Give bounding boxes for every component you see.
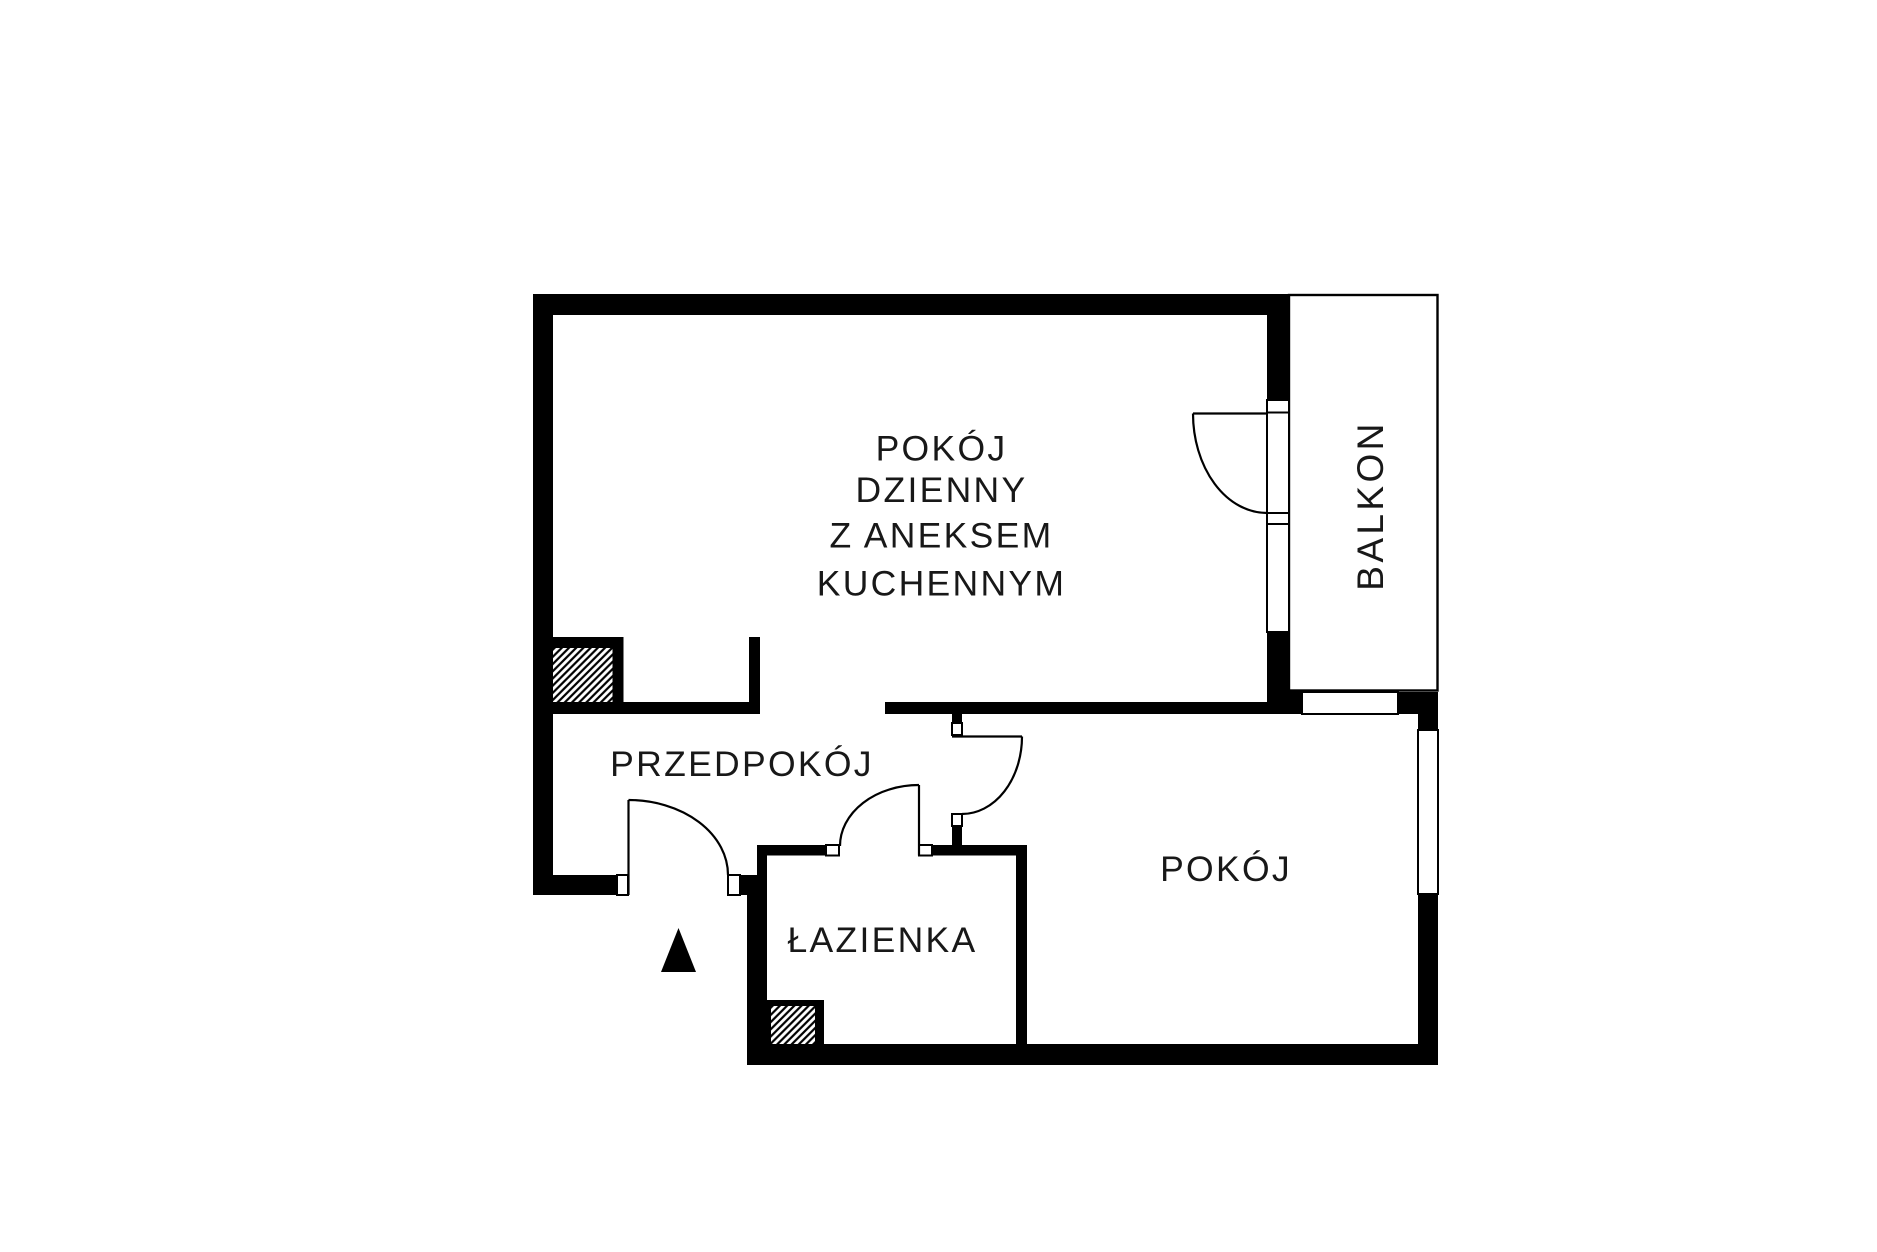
svg-text:POKÓJ: POKÓJ xyxy=(876,429,1008,469)
svg-text:POKÓJ: POKÓJ xyxy=(1160,849,1292,889)
svg-text:BALKON: BALKON xyxy=(1350,420,1391,591)
svg-text:DZIENNY: DZIENNY xyxy=(856,470,1028,510)
svg-text:Z ANEKSEM: Z ANEKSEM xyxy=(830,516,1054,556)
svg-text:ŁAZIENKA: ŁAZIENKA xyxy=(787,920,977,960)
svg-text:KUCHENNYM: KUCHENNYM xyxy=(817,564,1067,604)
svg-text:PRZEDPOKÓJ: PRZEDPOKÓJ xyxy=(610,744,874,784)
